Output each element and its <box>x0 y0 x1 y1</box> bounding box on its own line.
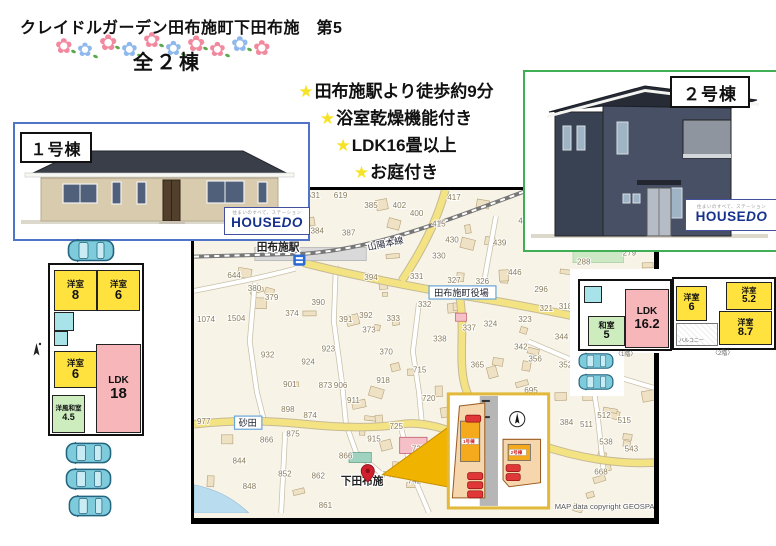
floor2-caption: 〈2階〉 <box>712 348 733 357</box>
inset-lot2-label: 2号棟 <box>511 449 523 456</box>
parcel-number: 512 <box>597 411 611 420</box>
parcel-number: 866 <box>260 435 274 444</box>
room-yoshitsu-8: 洋室8 <box>54 270 97 311</box>
room-yoshitsu-6b: 洋室6 <box>54 351 97 388</box>
feature-item: ★お庭付き <box>282 161 510 188</box>
parcel-number: 439 <box>493 239 507 248</box>
parcel-number: 923 <box>322 345 336 354</box>
room-washitsu-5: 和室5 <box>588 316 625 346</box>
parcel-number: 379 <box>265 293 279 302</box>
flower-icon: ✿ <box>209 40 226 60</box>
parcel-number: 866 <box>339 452 353 461</box>
parcel-number: 331 <box>410 272 424 281</box>
parcel-number: 326 <box>476 277 490 286</box>
parcel-number: 915 <box>367 434 381 443</box>
house2-brand-logo: 住まいのすべて、ステーション HOUSEDO <box>685 199 776 231</box>
parking-car-icon <box>68 494 112 518</box>
parcel-number: 668 <box>594 468 608 477</box>
parcel-number: 338 <box>433 334 447 343</box>
parcel-number: 1504 <box>227 314 246 323</box>
place-name-label: 下田布施 <box>341 475 384 488</box>
parcel-number: 385 <box>364 201 378 210</box>
house2-label: ２号棟 <box>670 76 750 108</box>
inset-compass-icon <box>510 412 525 427</box>
parcel-number: 384 <box>311 226 325 235</box>
parcel-number: 387 <box>342 228 356 237</box>
parcel-number: 619 <box>334 191 348 200</box>
parcel-number: 1074 <box>197 315 216 324</box>
parking-car-icon <box>578 352 614 370</box>
parcel-number: 374 <box>285 309 299 318</box>
total-units-label: 全２棟 <box>133 46 202 75</box>
parcel-number: 373 <box>362 325 376 334</box>
parcel-number: 327 <box>447 276 461 285</box>
parcel-number: 324 <box>484 319 498 328</box>
parcel-number: 365 <box>471 361 485 370</box>
floorplan-house2-2f: 洋室6 洋室5.2 洋室8.7 バルコニー <box>672 277 776 350</box>
parcel-number: 932 <box>261 351 275 360</box>
parcel-number: 874 <box>303 411 317 420</box>
parcel-number: 330 <box>432 252 446 261</box>
flyer-page: クレイドルガーデン田布施町下田布施 第5 ✿✿✿✿✿✿✿✿✿✿ 全２棟 ★田布施… <box>0 0 776 546</box>
map-copyright: MAP data copyright GEOSPACE <box>555 502 654 511</box>
feature-item: ★田布施駅より徒歩約9分 <box>282 80 510 107</box>
parcel-number: 402 <box>393 201 407 210</box>
parcel-number: 906 <box>334 381 348 390</box>
bathroom <box>584 286 602 303</box>
leaf-icon <box>93 54 99 59</box>
parcel-number: 873 <box>319 381 333 390</box>
room-yoshitsu-8.7: 洋室8.7 <box>719 311 772 345</box>
site-plan-inset: 1号棟 2号棟 <box>448 394 548 508</box>
parcel-number: 321 <box>540 304 554 313</box>
room-ldk-16.2: LDK16.2 <box>625 289 669 348</box>
parcel-number: 344 <box>555 332 569 341</box>
feature-text: LDK16畳以上 <box>352 136 457 155</box>
star-icon: ★ <box>298 82 313 101</box>
house1-brand-logo: 住まいのすべて、ステーション HOUSEDO <box>224 207 310 235</box>
parcel-number: 333 <box>387 314 401 323</box>
town-hall-label: 田布施町役場 <box>434 287 489 298</box>
housedo-logo: HOUSEDO <box>231 216 303 231</box>
parcel-number: 337 <box>463 323 477 332</box>
house2-label-text: ２号棟 <box>683 80 737 105</box>
flower-icon: ✿ <box>253 38 271 59</box>
room-ldk-18: LDK18 <box>96 344 141 433</box>
feature-text: 浴室乾燥機能付き <box>336 109 472 128</box>
flower-icon: ✿ <box>55 36 73 57</box>
parcel-number: 911 <box>347 396 360 405</box>
parcel-number: 538 <box>599 437 613 446</box>
parcel-number: 844 <box>233 457 247 466</box>
station-name-label: 田布施駅 <box>257 241 300 254</box>
parking-car-icon <box>67 238 115 263</box>
parcel-number: 720 <box>422 394 436 403</box>
parcel-number: 288 <box>577 258 591 267</box>
parcel-number: 400 <box>410 209 424 218</box>
parcel-number: 391 <box>339 315 353 324</box>
parcel-number: 394 <box>364 273 378 282</box>
compass-icon <box>30 342 43 358</box>
parcel-number: 852 <box>278 470 292 479</box>
parcel-number: 715 <box>413 366 427 375</box>
parcel-number: 392 <box>359 311 373 320</box>
star-icon: ★ <box>320 109 335 128</box>
parcel-number: 644 <box>227 271 241 280</box>
star-icon: ★ <box>335 136 350 155</box>
parcel-number: 430 <box>445 236 459 245</box>
room-yoshitsu-6: 洋室6 <box>676 286 707 321</box>
parcel-number: 356 <box>528 355 542 364</box>
parcel-number: 875 <box>286 429 300 438</box>
parcel-number: 342 <box>514 342 528 351</box>
district-label: 砂田 <box>239 417 257 428</box>
feature-text: お庭付き <box>370 163 438 182</box>
washroom <box>54 331 68 346</box>
parcel-number: 446 <box>508 268 522 277</box>
room-youfuu-washitsu: 洋風和室4.5 <box>52 395 85 433</box>
flower-icon: ✿ <box>231 34 249 55</box>
parcel-number: 390 <box>312 298 326 307</box>
flower-icon: ✿ <box>99 32 117 54</box>
parcel-number: 417 <box>447 193 461 202</box>
parcel-number: 901 <box>283 380 297 389</box>
feature-list: ★田布施駅より徒歩約9分★浴室乾燥機能付き★LDK16畳以上★お庭付き <box>282 80 510 188</box>
parcel-number: 898 <box>281 405 295 414</box>
feature-text: 田布施駅より徒歩約9分 <box>315 82 494 101</box>
parcel-number: 323 <box>518 315 532 324</box>
parcel-number: 918 <box>376 376 390 385</box>
parking-car-icon <box>65 467 112 491</box>
parcel-number: 515 <box>618 416 632 425</box>
parcel-number: 296 <box>534 285 548 294</box>
parcel-number: 384 <box>560 418 574 427</box>
parcel-number: 380 <box>248 284 262 293</box>
parcel-number: 415 <box>432 219 446 228</box>
parcel-number: 848 <box>243 482 257 491</box>
parking-car-icon <box>578 373 614 391</box>
parcel-number: 861 <box>319 501 333 510</box>
feature-item: ★LDK16畳以上 <box>282 134 510 161</box>
balcony: バルコニー <box>676 323 718 346</box>
parcel-number: 862 <box>312 472 326 481</box>
parcel-number: 370 <box>379 348 393 357</box>
inset-lot1-label: 1号棟 <box>463 438 475 445</box>
house1-label: １号棟 <box>20 132 92 163</box>
parcel-number: 977 <box>197 417 211 426</box>
parcel-number: 725 <box>390 422 404 431</box>
room-yoshitsu-5.2: 洋室5.2 <box>726 282 772 310</box>
parcel-number: 543 <box>625 444 639 453</box>
housedo-logo: HOUSEDO <box>696 210 768 225</box>
room-yoshitsu-6a: 洋室6 <box>97 270 140 311</box>
station-icon <box>293 255 305 266</box>
parcel-number: 511 <box>580 420 593 429</box>
house1-label-text: １号棟 <box>30 136 81 160</box>
flower-icon: ✿ <box>77 41 93 60</box>
parcel-number: 924 <box>301 358 315 367</box>
parking-car-icon <box>65 441 112 465</box>
feature-item: ★浴室乾燥機能付き <box>282 107 510 134</box>
floorplan-house2-1f: 和室5 LDK16.2 <box>578 279 672 351</box>
star-icon: ★ <box>354 163 369 182</box>
bathroom <box>54 312 74 331</box>
parcel-number: 332 <box>418 300 432 309</box>
floor1-caption: 〈1階〉 <box>615 349 636 358</box>
floorplan-house1: 洋室8 洋室6 洋室6 LDK18 洋風和室4.5 <box>48 263 144 436</box>
